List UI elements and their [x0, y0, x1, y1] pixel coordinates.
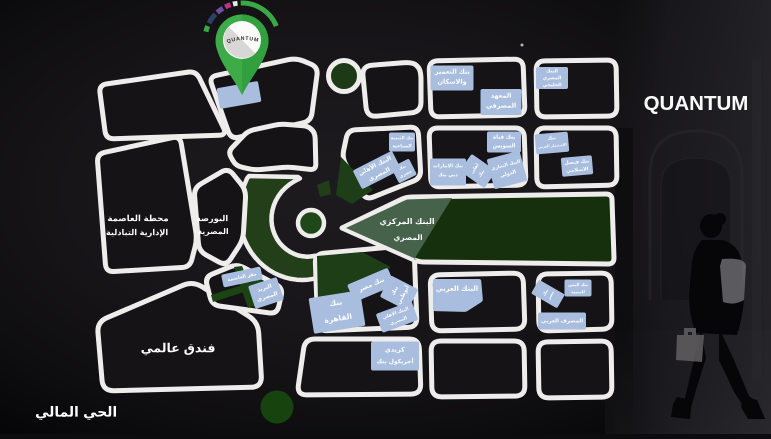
svg-text:QUANTUM: QUANTUM [644, 92, 749, 115]
